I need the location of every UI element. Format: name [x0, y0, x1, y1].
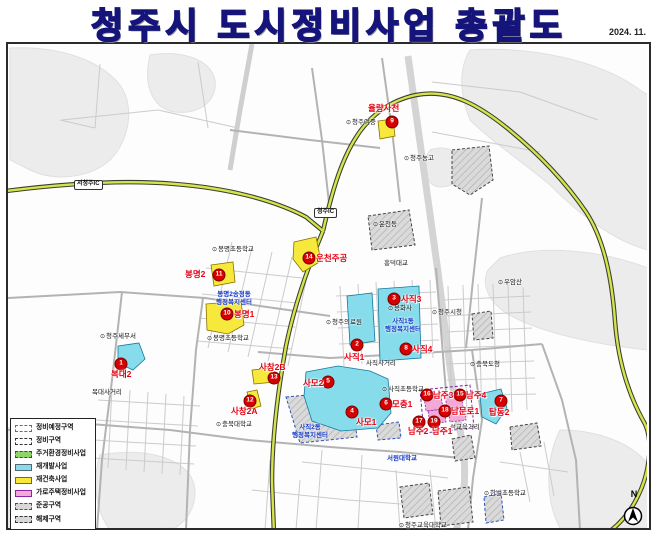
office-label: 사직1동행정복지센터 — [385, 318, 421, 334]
place-icon: ⊙ — [498, 280, 503, 286]
zone-label: 사창2A — [231, 407, 258, 416]
poi-label: 사직사거리 — [366, 361, 396, 368]
zone-marker-8: 8 — [400, 343, 413, 356]
zone-label: 모충1 — [392, 400, 412, 409]
legend-row: 재건축사업 — [15, 475, 91, 487]
legend-label: 해제구역 — [36, 517, 61, 524]
zone-marker-13: 13 — [268, 372, 281, 385]
legend-label: 준공구역 — [36, 503, 61, 510]
legend-label: 정비구역 — [36, 438, 61, 445]
office-label: 사직2동행정복지센터 — [292, 424, 328, 440]
poi-label: 복대사거리 — [92, 390, 122, 397]
legend-row: 주거환경정비사업 — [15, 448, 91, 460]
zone-label: 남문로1 — [451, 407, 479, 416]
legend-label: 재건축사업 — [36, 477, 67, 484]
poi-label: ⊙용화사 — [388, 306, 412, 313]
zone-label: 율량사천 — [368, 104, 399, 113]
legend-label: 재개발사업 — [36, 464, 67, 471]
zone-label: 사직4 — [412, 345, 432, 354]
legend-swatch-plan — [15, 425, 32, 432]
north-label: N — [626, 490, 642, 499]
road-label: 청주IC — [314, 208, 337, 218]
legend-box: 정비예정구역정비구역주거환경정비사업재개발사업재건축사업가로주택정비사업준공구역… — [10, 418, 96, 530]
zone-marker-5: 5 — [322, 376, 335, 389]
place-icon: ⊙ — [484, 491, 489, 497]
legend-row: 재개발사업 — [15, 461, 91, 473]
legend-row: 가로주택정비사업 — [15, 488, 91, 500]
map-date: 2024. 11. — [609, 27, 646, 37]
zone-label: 사직3 — [401, 295, 421, 304]
zone-label: 사모2 — [303, 379, 323, 388]
zone-label: 사직1 — [344, 353, 364, 362]
office-label: 서원대학교 — [387, 455, 417, 463]
legend-row: 정비구역 — [15, 435, 91, 447]
poi-label: ⊙청주농고 — [404, 156, 434, 163]
zone-label: 탑동2 — [489, 408, 509, 417]
place-icon: ⊙ — [399, 523, 404, 529]
zone-label: 남주2 — [408, 427, 428, 436]
poi-label: ⊙청주의료원 — [326, 320, 362, 327]
poi-label: ⊙한벌초등학교 — [484, 491, 526, 498]
poi-label: ⊙봉명초등학교 — [212, 247, 254, 254]
poi-label: 석교육거리 — [450, 425, 480, 432]
place-icon: ⊙ — [326, 320, 331, 326]
zone-marker-9: 9 — [386, 116, 399, 129]
zone-marker-14: 14 — [303, 252, 316, 265]
poi-label: ⊙사직초등학교 — [382, 387, 424, 394]
zone-marker-3: 3 — [388, 293, 401, 306]
map-canvas — [0, 0, 658, 538]
zone-label: 봉명1 — [234, 310, 254, 319]
legend-swatch-cancel — [15, 516, 32, 523]
place-icon: ⊙ — [212, 247, 217, 253]
zone-marker-2: 2 — [351, 339, 364, 352]
road-label: 서청주IC — [74, 180, 103, 190]
place-icon: ⊙ — [470, 362, 475, 368]
zone-label: 남주1 — [432, 427, 452, 436]
legend-row: 정비예정구역 — [15, 422, 91, 434]
zone-label: 복대2 — [111, 370, 131, 379]
zone-label: 운천주공 — [316, 254, 347, 263]
zone-marker-11: 11 — [213, 269, 226, 282]
page-title: 청주시 도시정비사업 총괄도 — [0, 0, 658, 49]
office-label: 봉명2송정동행정복지센터 — [216, 291, 252, 307]
legend-swatch-done — [15, 503, 32, 510]
legend-swatch-zone — [15, 438, 32, 445]
zone-marker-10: 10 — [221, 308, 234, 321]
zone-marker-16: 16 — [421, 389, 434, 402]
legend-label: 가로주택정비사업 — [36, 490, 86, 497]
place-icon: ⊙ — [432, 310, 437, 316]
zone-label: 봉명2 — [185, 270, 205, 279]
legend-swatch-resid — [15, 451, 32, 458]
legend-label: 주거환경정비사업 — [36, 451, 86, 458]
zone-label: 남주4 — [466, 391, 486, 400]
zone-marker-18: 18 — [439, 405, 452, 418]
poi-label: ⊙청주교육대학교 — [399, 523, 447, 530]
legend-swatch-redevelop — [15, 464, 32, 471]
poi-label: ⊙우암산 — [498, 280, 522, 287]
zone-marker-15: 15 — [454, 389, 467, 402]
place-icon: ⊙ — [216, 422, 221, 428]
legend-label: 정비예정구역 — [36, 425, 74, 432]
poi-label: ⊙봉명초등학교 — [207, 336, 249, 343]
zone-label: 사창2B — [259, 363, 286, 372]
legend-row: 준공구역 — [15, 501, 91, 513]
legend-swatch-street — [15, 490, 32, 497]
legend-row: 해제구역 — [15, 514, 91, 526]
zone-marker-6: 6 — [380, 398, 393, 411]
poi-label: ⊙청주시청 — [432, 310, 462, 317]
poi-label: ⊙충북대학교 — [216, 422, 252, 429]
poi-label: ⊙충북도청 — [470, 362, 500, 369]
poi-label: 흥덕대교 — [384, 261, 408, 268]
place-icon: ⊙ — [207, 336, 212, 342]
place-icon: ⊙ — [388, 306, 393, 312]
place-icon: ⊙ — [382, 387, 387, 393]
zone-label: 남주3 — [433, 391, 453, 400]
map-poster: 청주시 도시정비사업 총괄도 2024. 11. ⊙봉명초등학교⊙봉명초등학교⊙… — [0, 0, 658, 538]
place-icon: ⊙ — [100, 334, 105, 340]
place-icon: ⊙ — [346, 120, 351, 126]
place-icon: ⊙ — [373, 222, 378, 228]
poi-label: ⊙운천동 — [373, 222, 397, 229]
place-icon: ⊙ — [404, 156, 409, 162]
north-arrow-icon — [625, 508, 642, 525]
legend-swatch-rebuild — [15, 477, 32, 484]
poi-label: ⊙청주세무서 — [100, 334, 136, 341]
zone-label: 사모1 — [356, 418, 376, 427]
poi-label: ⊙청주여중 — [346, 120, 376, 127]
zone-marker-7: 7 — [495, 395, 508, 408]
